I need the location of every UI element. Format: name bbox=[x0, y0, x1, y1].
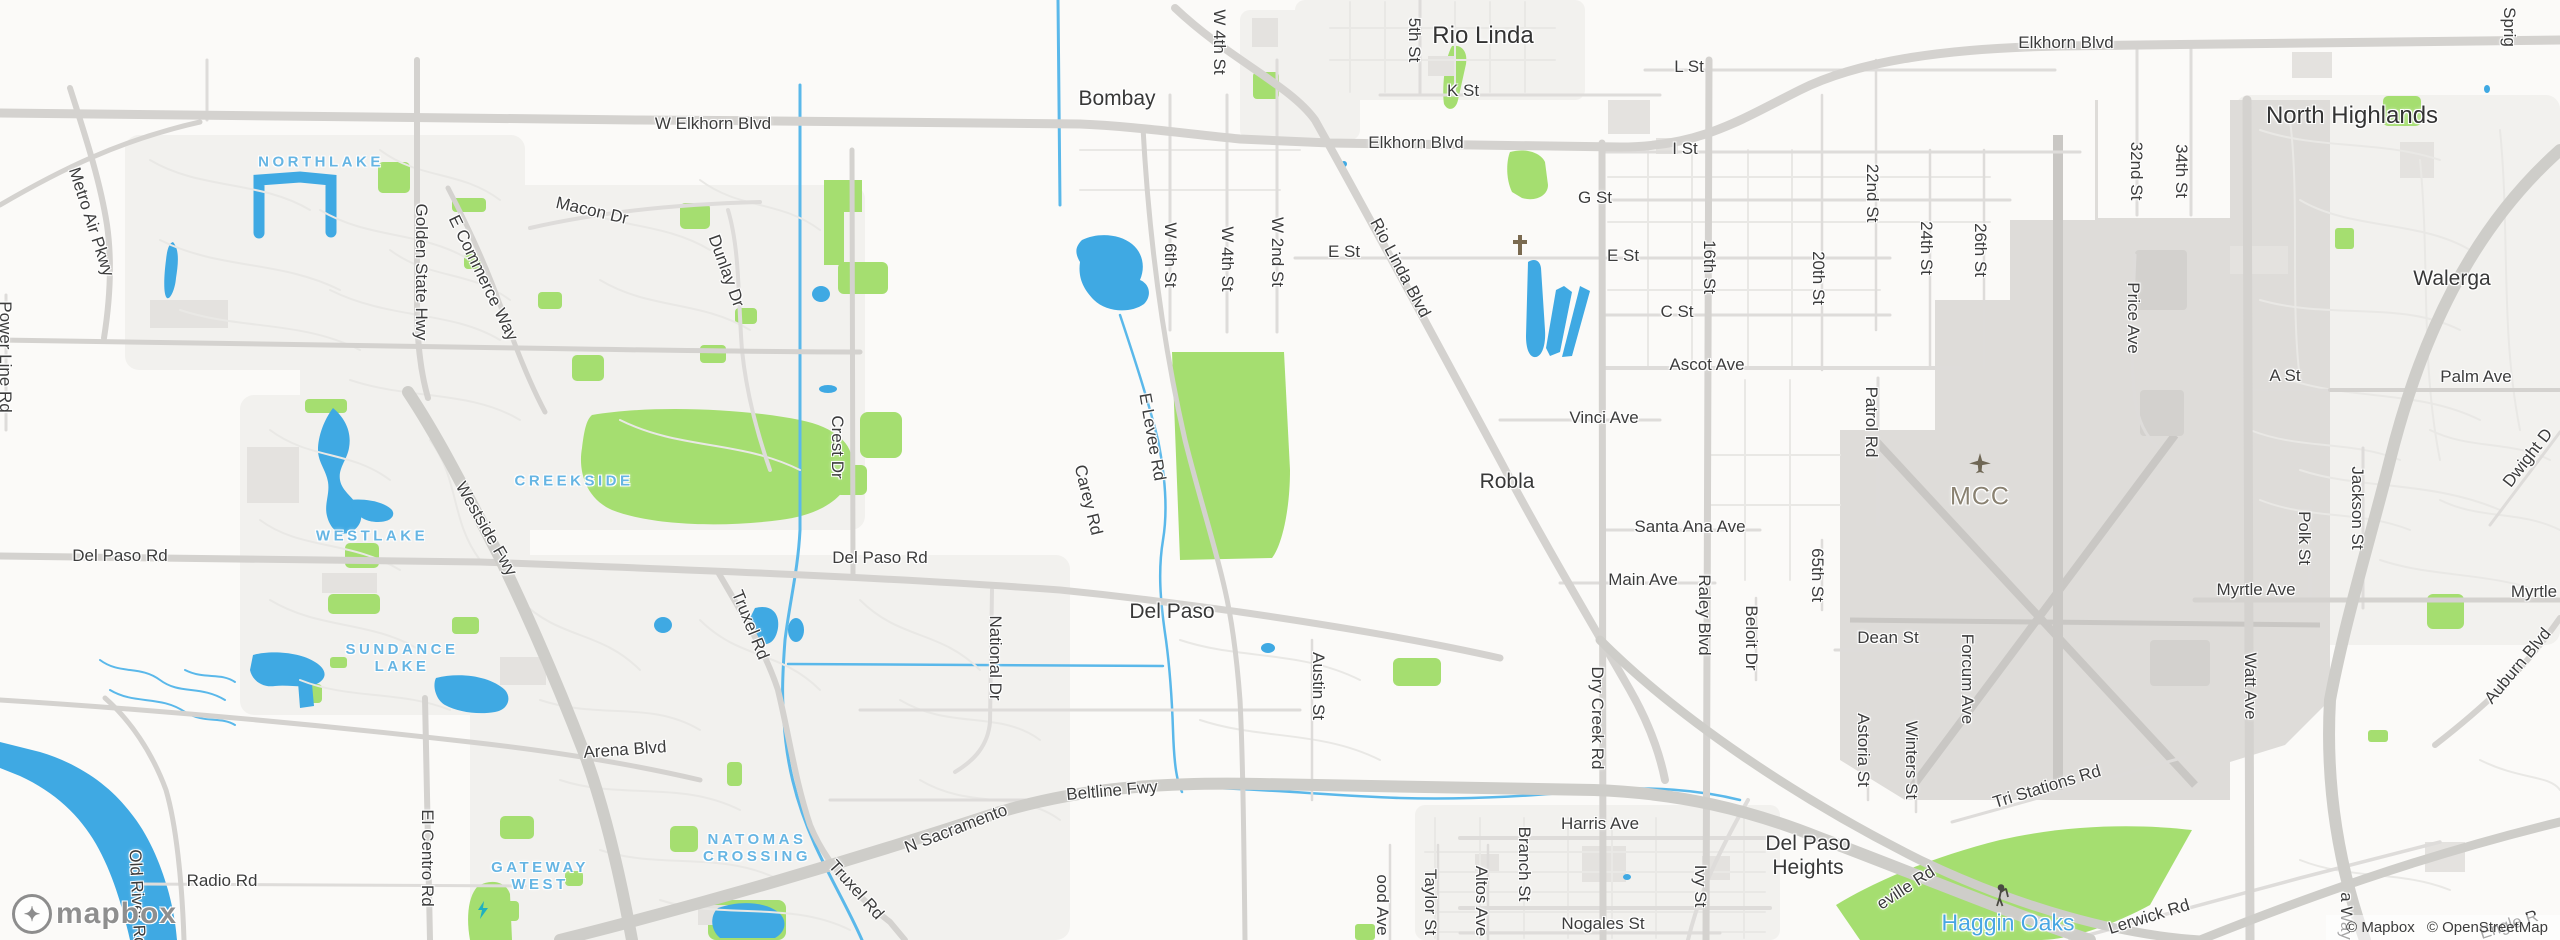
attribution-mapbox-link[interactable]: © Mapbox bbox=[2346, 919, 2415, 936]
mapbox-logo[interactable]: ✦ mapbox bbox=[12, 894, 177, 934]
mapbox-logo-icon: ✦ bbox=[12, 894, 52, 934]
map-canvas[interactable]: Rio LindaNorth HighlandsBombayWalergaRob… bbox=[0, 0, 2560, 940]
basemap-graphics bbox=[0, 0, 2560, 940]
attribution-osm-link[interactable]: © OpenStreetMap bbox=[2427, 919, 2548, 936]
mapbox-wordmark: mapbox bbox=[56, 897, 177, 931]
attribution-bar: © Mapbox © OpenStreetMap bbox=[2326, 915, 2560, 940]
